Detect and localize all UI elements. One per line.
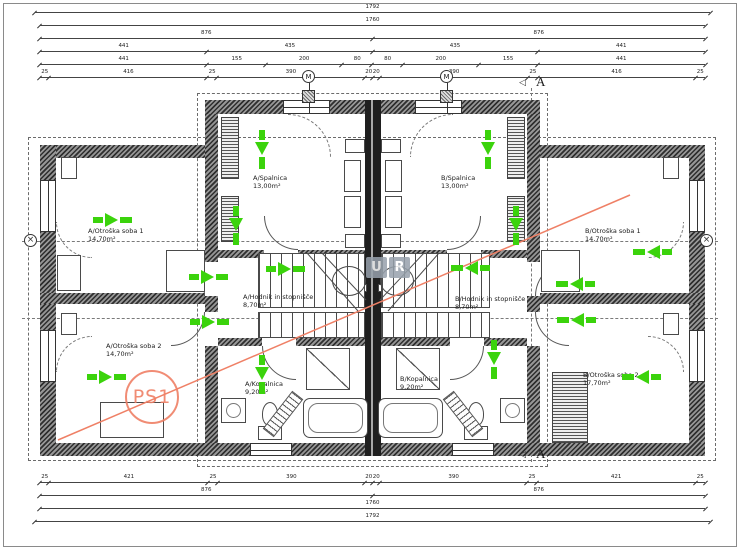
arrow-part: [557, 317, 569, 323]
arrow-part: [480, 265, 490, 271]
arrow-part: [651, 374, 661, 380]
arrow-part: [255, 142, 269, 155]
arrow-part: [233, 233, 239, 245]
pillow: [385, 196, 402, 228]
direction-arrow-icon: [229, 206, 243, 246]
arrow-part: [266, 266, 276, 272]
arrow-part: [485, 130, 491, 140]
arrow-part: [278, 262, 291, 276]
arrow-part: [114, 374, 126, 380]
arrow-part: [259, 130, 265, 140]
arrow-part: [87, 374, 97, 380]
arrow-part: [259, 157, 265, 169]
vent-circle-icon: M: [302, 70, 315, 83]
washing-machine: [500, 398, 525, 423]
section-arrow-icon: ◁: [519, 450, 526, 460]
room-label-text: 8,70m²: [455, 304, 575, 312]
room-label-text: 14,70m²: [106, 351, 226, 359]
watermark-letter: R: [389, 257, 410, 278]
arrow-part: [293, 266, 305, 272]
direction-arrow-icon: [509, 206, 523, 246]
arrow-part: [465, 261, 478, 275]
bathtub: [378, 398, 443, 438]
arrow-part: [586, 317, 596, 323]
room-label-text: 8,70m²: [243, 302, 363, 310]
direction-arrow-icon: [255, 355, 269, 395]
arrow-part: [189, 274, 199, 280]
arrow-part: [662, 249, 672, 255]
washing-machine: [221, 398, 246, 423]
arrow-part: [633, 249, 645, 255]
arrow-part: [259, 382, 265, 394]
wardrobe-hatched: [507, 117, 525, 179]
room-label: A/Otroška soba 214,70m²: [106, 343, 226, 359]
arrow-part: [202, 315, 215, 329]
room-label: B/Otroška soba 114,70m²: [585, 228, 705, 244]
direction-arrow-icon: [632, 245, 672, 259]
direction-arrow-icon: [266, 262, 306, 276]
room-label: A/Otroška soba 114,70m²: [88, 228, 208, 244]
arrow-part: [229, 218, 243, 231]
wardrobe-hatched: [221, 117, 239, 179]
room-label: B/Kopalnica9,20m²: [400, 376, 520, 392]
section-letter-top: A: [536, 74, 545, 90]
arrow-part: [491, 367, 497, 379]
arrow-part: [647, 245, 660, 259]
arrow-part: [190, 319, 200, 325]
arrow-part: [216, 274, 228, 280]
arrow-part: [105, 213, 118, 227]
room-label: B/Hodnik in stopnišče8,70m²: [455, 296, 575, 312]
arrow-part: [99, 370, 112, 384]
vent-shaft-icon: [302, 90, 315, 103]
room-label-text: 9,20m²: [400, 384, 520, 392]
nightstand: [381, 234, 401, 248]
arrow-part: [120, 217, 132, 223]
axis-marker-icon: ×: [700, 234, 713, 247]
room-label-text: 14,70m²: [88, 236, 208, 244]
direction-arrow-icon: [93, 213, 133, 227]
staircase: [381, 312, 490, 338]
watermark-letter: U: [366, 257, 387, 278]
direction-arrow-icon: [189, 270, 229, 284]
direction-arrow-icon: [487, 340, 501, 380]
arrow-part: [571, 313, 584, 327]
direction-arrow-icon: [621, 370, 661, 384]
ps1-marker: PS1: [125, 370, 179, 424]
arrow-part: [451, 265, 463, 271]
arrow-part: [201, 270, 214, 284]
axis-marker-icon: ×: [24, 234, 37, 247]
direction-arrow-icon: [255, 130, 269, 170]
direction-arrow-icon: [481, 130, 495, 170]
arrow-part: [570, 277, 583, 291]
arrow-part: [636, 370, 649, 384]
arrow-part: [233, 206, 239, 216]
arrow-part: [259, 355, 265, 365]
room-label: B/Spalnica13,00m²: [441, 175, 561, 191]
direction-arrow-icon: [555, 277, 595, 291]
arrow-part: [93, 217, 103, 223]
section-arrow-icon: ◁: [519, 78, 526, 88]
vent-shaft-icon: [440, 90, 453, 103]
section-letter-bottom: A: [536, 446, 545, 462]
room-label-text: 13,00m²: [441, 183, 561, 191]
arrow-part: [487, 352, 501, 365]
floor-plan: 1792176087687644143543544144115520080802…: [0, 0, 740, 550]
vent-circle-icon: M: [440, 70, 453, 83]
direction-arrow-icon: [190, 315, 230, 329]
arrow-part: [513, 233, 519, 245]
arrow-part: [255, 367, 269, 380]
room-label-text: 13,00m²: [253, 183, 373, 191]
arrow-part: [481, 142, 495, 155]
arrow-part: [485, 157, 491, 169]
pillow: [385, 160, 402, 192]
arrow-part: [513, 206, 519, 216]
bathtub: [303, 398, 368, 438]
arrow-part: [622, 374, 634, 380]
room-label-text: 14,70m²: [585, 236, 705, 244]
direction-arrow-icon: [556, 313, 596, 327]
room-label: A/Hodnik in stopnišče8,70m²: [243, 294, 363, 310]
direction-arrow-icon: [87, 370, 127, 384]
arrow-part: [585, 281, 595, 287]
nightstand: [381, 139, 401, 153]
arrow-part: [556, 281, 568, 287]
arrow-part: [491, 340, 497, 350]
arrow-part: [509, 218, 523, 231]
direction-arrow-icon: [450, 261, 490, 275]
staircase: [258, 312, 365, 338]
stair-curve: [332, 266, 366, 296]
room-label: A/Spalnica13,00m²: [253, 175, 373, 191]
arrow-part: [217, 319, 229, 325]
double-bed: [0, 313, 72, 390]
